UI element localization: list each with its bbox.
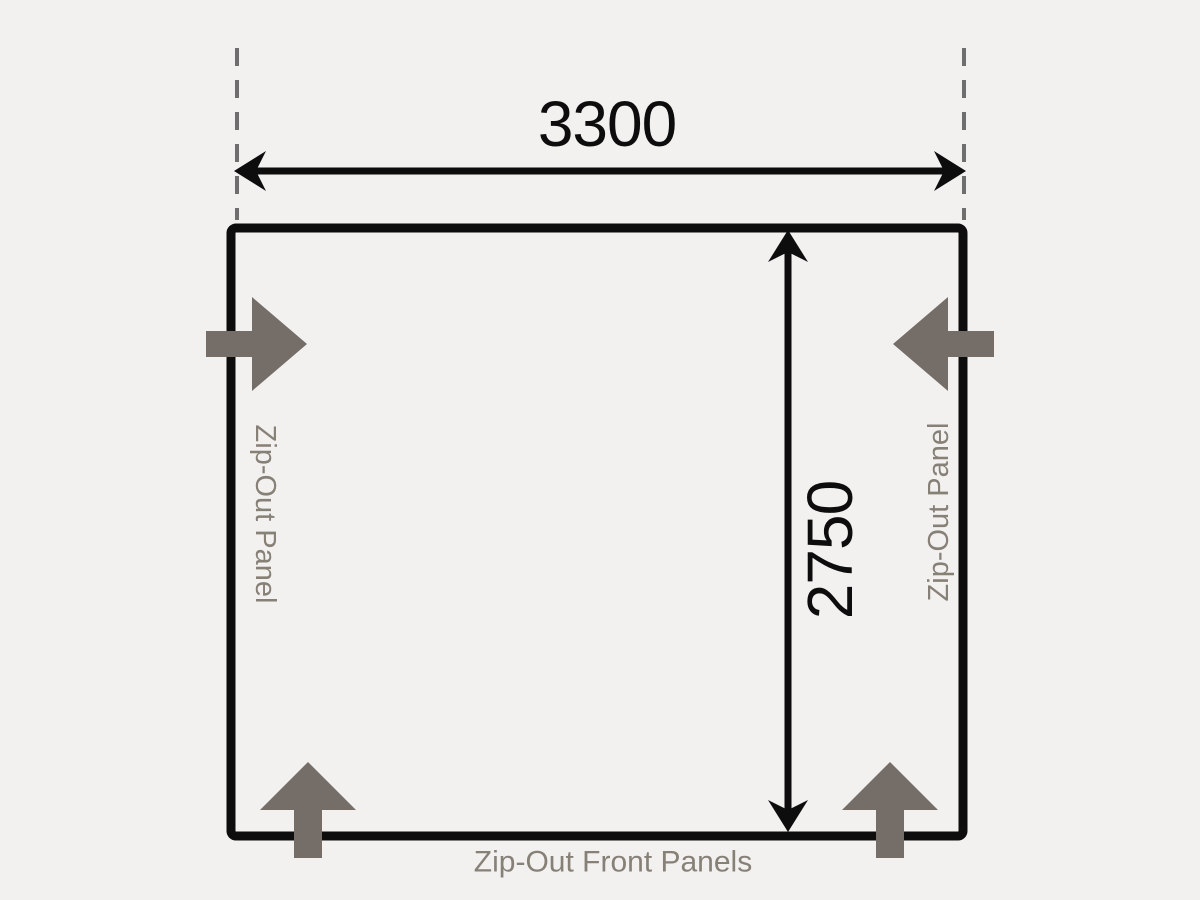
awning-dimension-diagram: 3300 2750 Zip-Out Panel Zip-Out Panel Zi… xyxy=(0,0,1200,900)
zip-out-panel-left-label: Zip-Out Panel xyxy=(249,425,281,604)
width-dimension-label: 3300 xyxy=(538,88,676,160)
zip-out-panel-right-label: Zip-Out Panel xyxy=(923,423,955,602)
diagram-canvas: 3300 2750 Zip-Out Panel Zip-Out Panel Zi… xyxy=(0,0,1200,900)
zip-out-front-panels-label: Zip-Out Front Panels xyxy=(474,846,752,879)
depth-dimension-label: 2750 xyxy=(794,481,866,619)
